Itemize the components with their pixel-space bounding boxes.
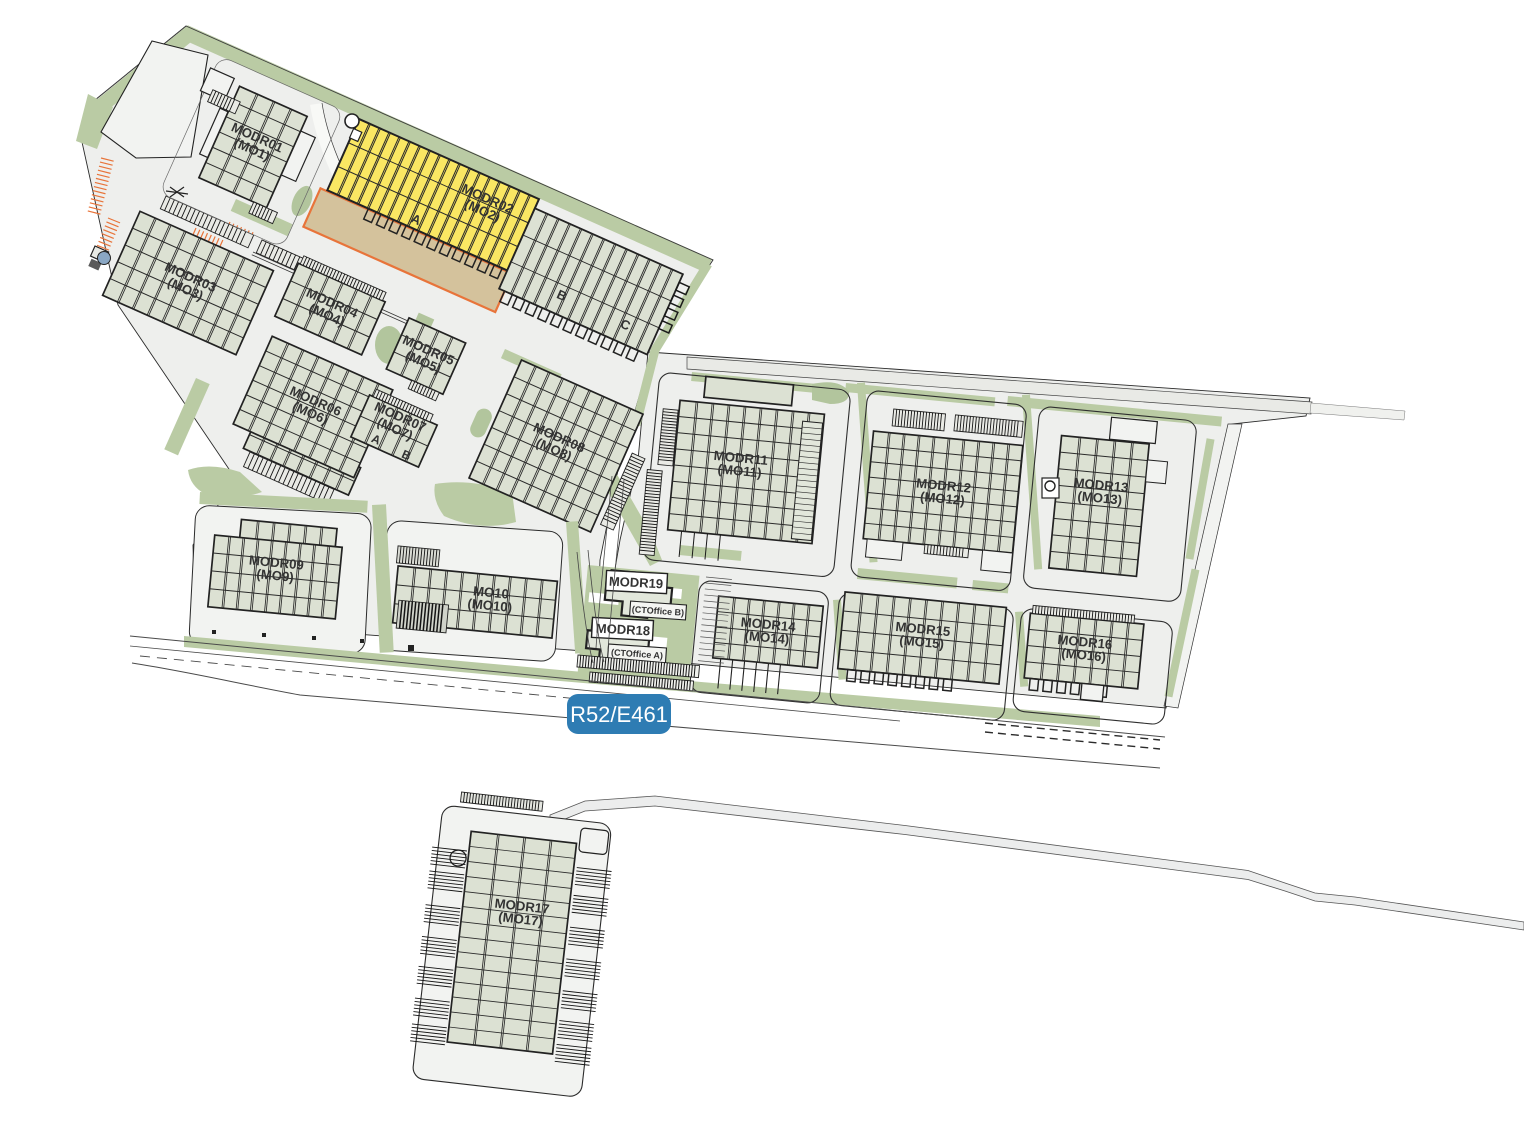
svg-text:R52/E461: R52/E461 — [570, 702, 668, 727]
svg-text:MODR19: MODR19 — [609, 574, 664, 592]
svg-text:MODR18: MODR18 — [596, 621, 651, 639]
